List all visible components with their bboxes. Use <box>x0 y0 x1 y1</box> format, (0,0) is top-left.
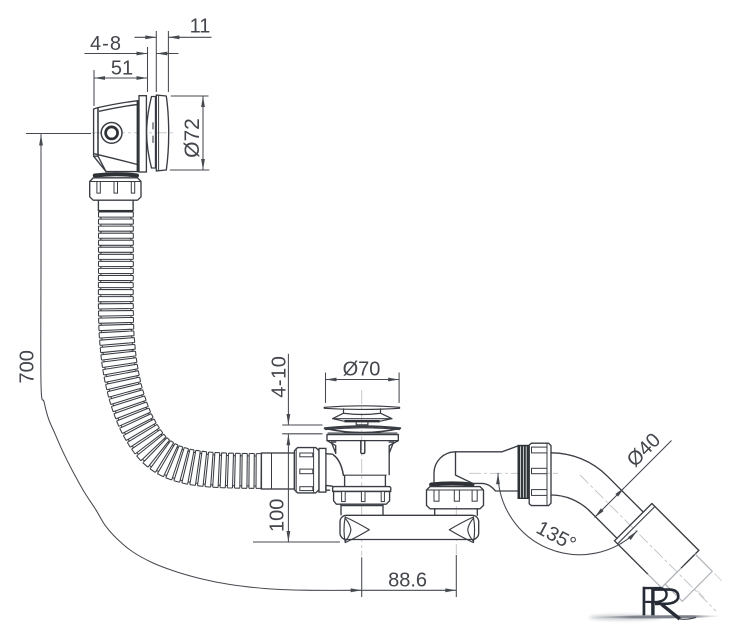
svg-text:51: 51 <box>111 58 133 80</box>
svg-text:100: 100 <box>267 499 289 532</box>
svg-text:700: 700 <box>16 350 38 383</box>
svg-text:Ø70: Ø70 <box>343 359 381 381</box>
svg-text:4-8: 4-8 <box>90 33 122 55</box>
svg-text:88.6: 88.6 <box>388 570 427 592</box>
svg-text:11: 11 <box>190 16 211 38</box>
svg-text:4-10: 4-10 <box>268 356 290 398</box>
svg-text:Ø72: Ø72 <box>181 118 204 158</box>
